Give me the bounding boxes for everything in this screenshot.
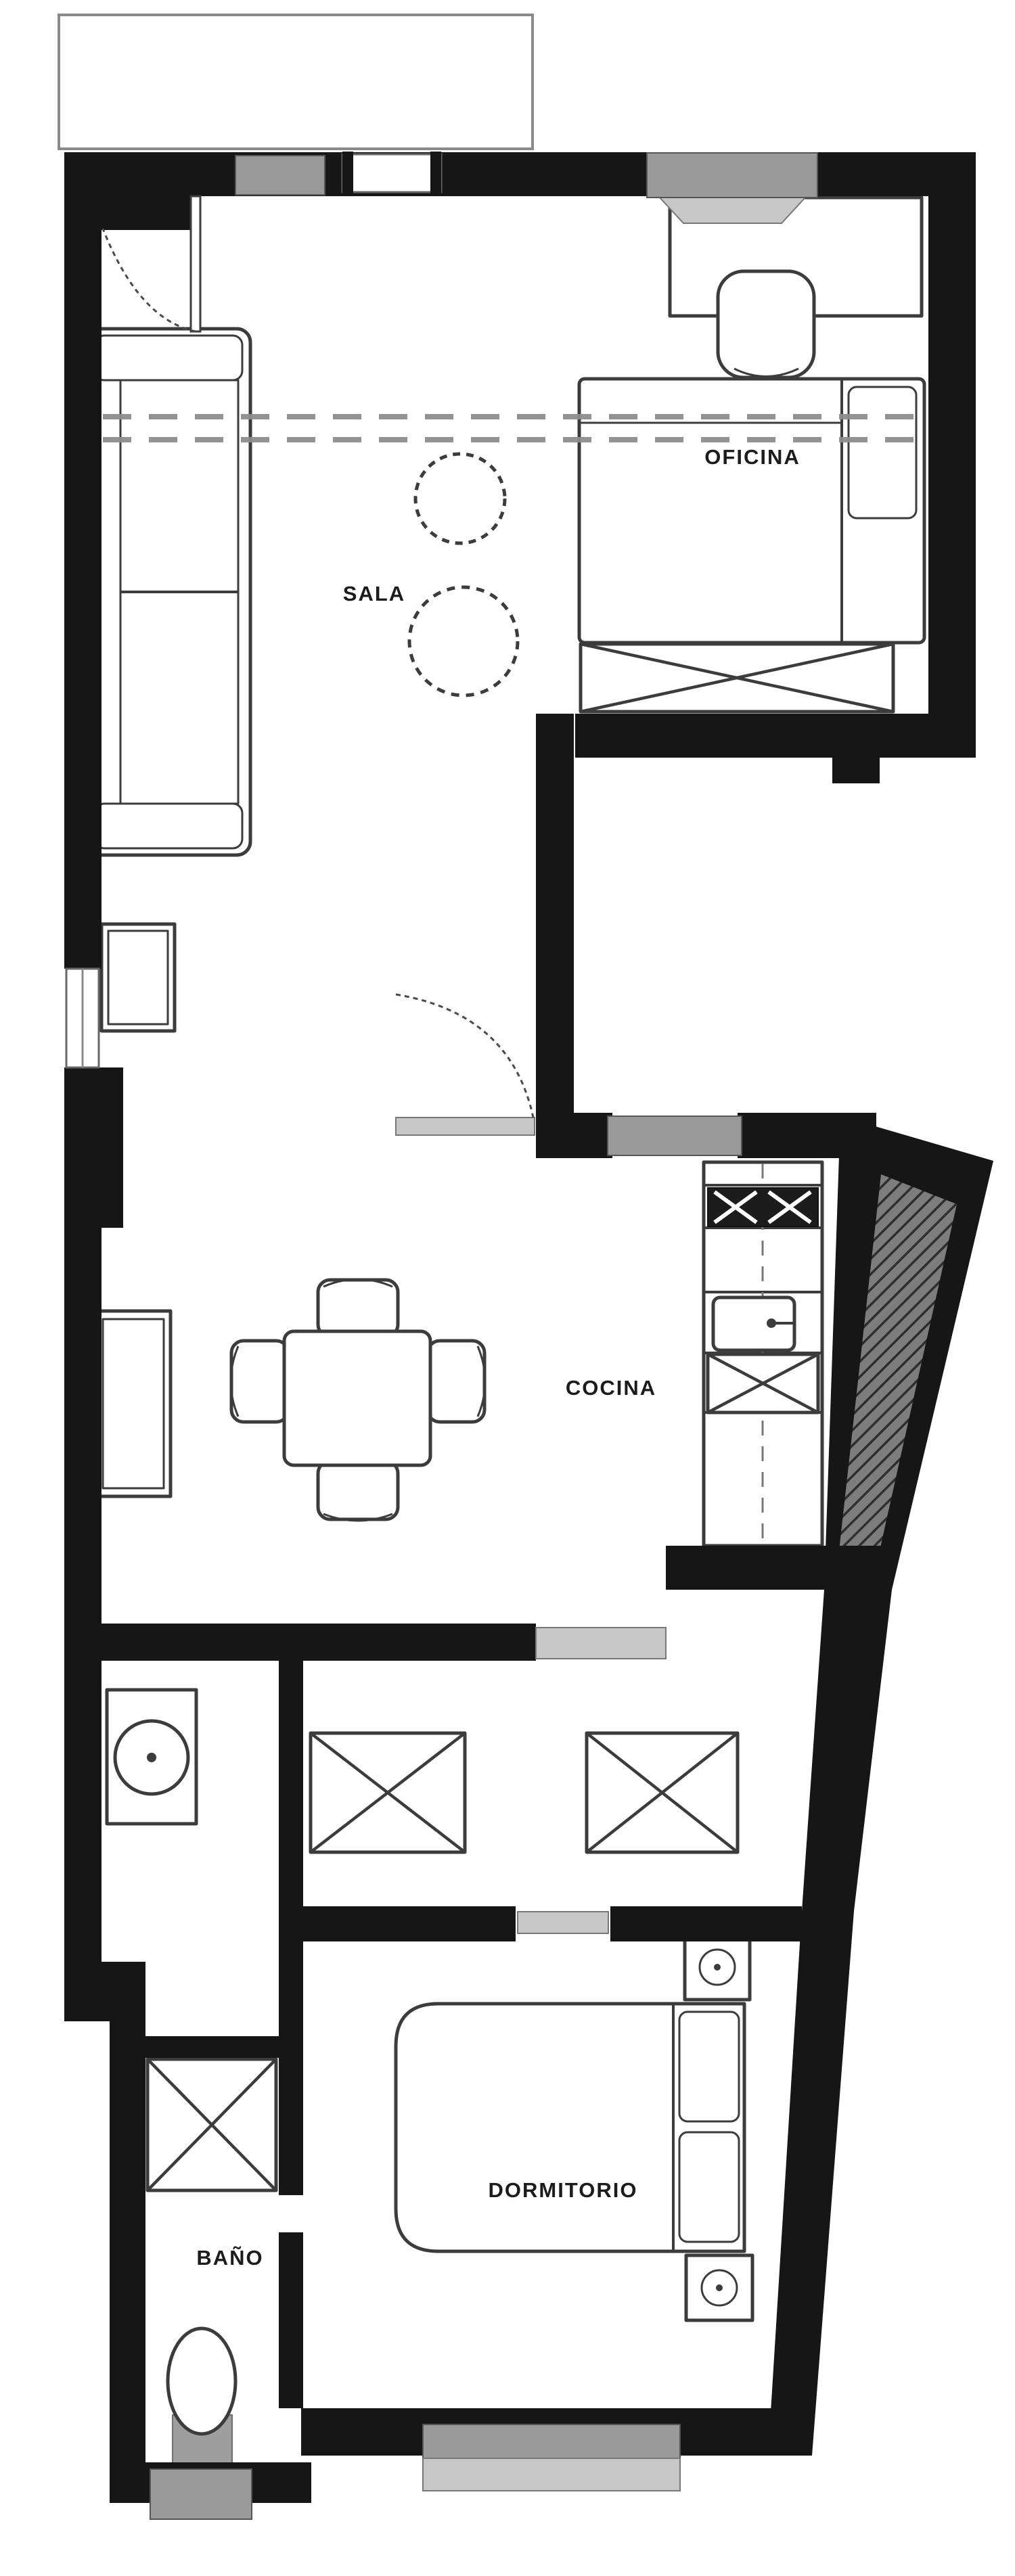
window-icon	[608, 1116, 742, 1155]
room-label-sala: SALA	[343, 582, 405, 605]
wall-segment	[279, 1661, 303, 2195]
window-icon	[150, 2469, 252, 2519]
room-label-bano: BAÑO	[196, 2246, 263, 2270]
window-icon	[647, 153, 817, 198]
dining-chair-icon	[318, 1461, 398, 1521]
wall-segment	[928, 152, 976, 758]
floor-plan: SALA OFICINA COCINA DORMITORIO BAÑO	[0, 0, 1015, 2576]
wall-segment	[64, 1630, 101, 1969]
sliding-door-icon	[518, 1912, 608, 1933]
wall-segment	[536, 714, 574, 1116]
side-table-icon	[101, 924, 175, 1031]
wardrobe-x-icon	[311, 1733, 465, 1852]
window-icon	[235, 156, 325, 195]
washer-icon	[107, 1690, 196, 1824]
sofa-icon	[85, 329, 250, 855]
dining-chair-icon	[428, 1341, 485, 1422]
window-icon	[342, 154, 441, 192]
plant-circle-icon	[415, 454, 505, 543]
window-sill	[660, 198, 805, 223]
nightstand-icon	[685, 1935, 750, 2000]
wall-segment	[832, 758, 880, 783]
wall-segment	[610, 1906, 802, 1941]
wall-segment	[666, 1546, 892, 1590]
sink-icon	[713, 1297, 794, 1350]
room-label-oficina: OFICINA	[704, 445, 800, 469]
toilet-icon	[168, 2328, 235, 2464]
door-threshold	[536, 1628, 666, 1659]
wall-segment	[64, 152, 101, 969]
nightstand-icon	[686, 2255, 752, 2320]
wall-segment	[64, 152, 976, 196]
wall-segment	[64, 1228, 101, 1630]
sideboard-icon	[96, 1311, 171, 1496]
wall-segment	[101, 1624, 536, 1661]
stove-icon	[708, 1188, 818, 1226]
double-bed-icon	[396, 2004, 744, 2251]
storage-bench-icon	[581, 644, 893, 712]
dining-chair-icon	[231, 1341, 288, 1422]
room-label-cocina: COCINA	[566, 1376, 656, 1400]
dining-table-icon	[284, 1331, 430, 1465]
cabinet-x-icon	[708, 1354, 818, 1412]
wall-segment	[279, 2232, 303, 2408]
wall-segment	[110, 2036, 279, 2058]
wall-segment	[110, 2019, 145, 2503]
wall-segment	[575, 714, 976, 758]
floor-plan-canvas: SALA OFICINA COCINA DORMITORIO BAÑO	[0, 0, 1015, 2576]
wardrobe-x-icon	[587, 1733, 738, 1852]
plant-circle-icon	[409, 587, 518, 695]
dining-chair-icon	[318, 1279, 398, 1337]
wall-segment	[64, 1962, 145, 2021]
room-label-dormitorio: DORMITORIO	[489, 2178, 638, 2202]
window-icon	[423, 2458, 680, 2491]
shower-icon	[148, 2059, 276, 2190]
wall-segment	[100, 196, 195, 230]
office-chair-icon	[718, 271, 814, 377]
wall-segment	[64, 1067, 123, 1228]
window-icon	[423, 2424, 680, 2458]
wall-segment	[536, 1113, 612, 1158]
wall-segment	[303, 1906, 516, 1941]
